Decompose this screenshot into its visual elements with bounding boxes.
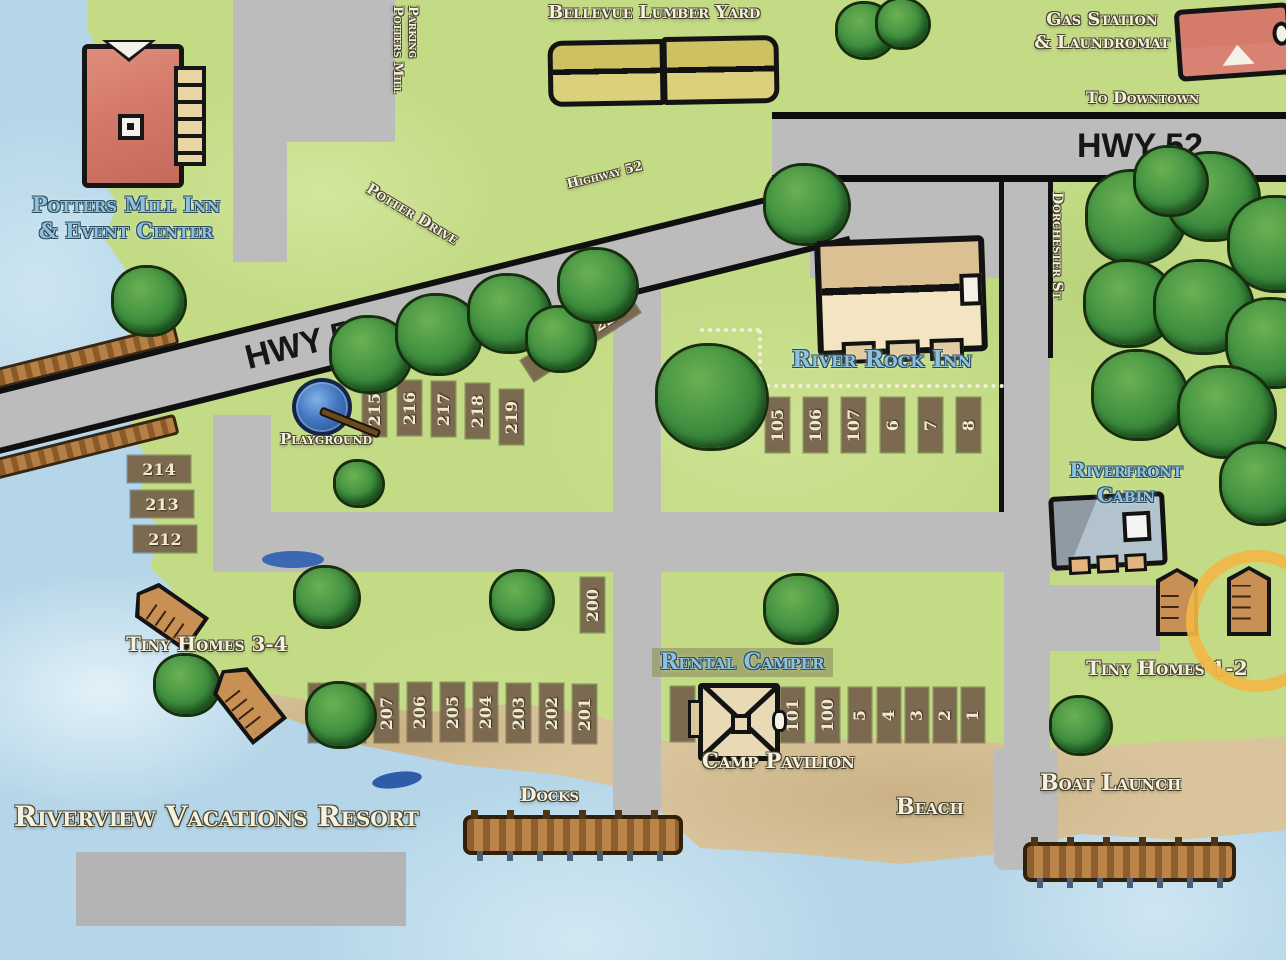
campsite-3: 3 <box>906 688 928 742</box>
site-number: 3 <box>907 709 926 720</box>
docks-label: Docks <box>520 784 579 806</box>
site-number: 212 <box>148 530 181 549</box>
label-line: Riverfront <box>1069 458 1182 482</box>
resort-title: Riverview Vacations Resort <box>14 800 419 833</box>
site-number: 207 <box>377 696 396 729</box>
campsite-219: 219 <box>500 390 523 444</box>
campsite-204: 204 <box>474 683 497 741</box>
cabin-window <box>1122 511 1152 542</box>
camp-main-road <box>613 250 661 818</box>
campsite-214: 214 <box>128 456 190 482</box>
site-number: 203 <box>509 696 528 729</box>
site-number: 4 <box>879 709 898 720</box>
campsite-212: 212 <box>134 526 196 552</box>
site-number: 105 <box>768 408 787 441</box>
site-number: 7 <box>921 419 940 430</box>
site-number: 5 <box>850 709 869 720</box>
campsite-213: 213 <box>131 491 193 517</box>
tiny-homes-34-label: Tiny Homes 3-4 <box>126 632 288 656</box>
campsite-4: 4 <box>878 688 900 742</box>
tree-icon <box>308 684 374 746</box>
tree-icon <box>296 568 358 626</box>
campsite-218: 218 <box>466 384 489 438</box>
tiny-homes-drive <box>1048 585 1160 651</box>
cabin-foot <box>1096 554 1119 573</box>
tree-icon <box>766 576 836 642</box>
label-line: Potters Mill Inn <box>32 192 221 217</box>
camp-pavilion-label: Camp Pavilion <box>702 748 855 773</box>
campsite-100: 100 <box>816 688 839 742</box>
tree-icon <box>156 656 218 714</box>
campsite-200: 200 <box>581 578 604 632</box>
inn-annex <box>174 66 206 166</box>
campsite-106: 106 <box>804 398 827 452</box>
parking-label-line2: Parking <box>405 6 420 58</box>
label-line: Gas Station <box>1046 9 1157 30</box>
lumber-yard-building-west <box>547 39 665 107</box>
tree-icon <box>658 346 766 448</box>
inn-window-pane <box>127 123 134 130</box>
watermark-box <box>76 852 406 926</box>
gas-station-window <box>1272 21 1286 46</box>
site-number: 214 <box>142 460 175 479</box>
campsite-203: 203 <box>507 684 530 742</box>
site-number: 218 <box>468 394 487 427</box>
parking-label-line1: Potters Mill <box>390 6 405 93</box>
river-rock-inn-building <box>814 235 988 357</box>
site-number: 216 <box>400 391 419 424</box>
tree-icon <box>1052 698 1110 753</box>
tree-icon <box>1094 352 1186 438</box>
campsite-107: 107 <box>842 398 865 452</box>
pavilion-table <box>772 710 787 732</box>
pavilion-grill <box>688 700 702 738</box>
dorchester-st-label: Dorchester St <box>1049 192 1065 299</box>
inn-roof-notch-fill <box>108 42 150 58</box>
campsite-1: 1 <box>962 688 984 742</box>
site-number: 100 <box>818 698 837 731</box>
gas-station-label: Gas Station & Laundromat <box>1022 8 1182 54</box>
pavilion-peak <box>731 714 751 734</box>
gas-station-building <box>1174 2 1286 82</box>
tree-icon <box>1222 444 1286 523</box>
campsite-105: 105 <box>766 398 789 452</box>
site-number: 213 <box>145 495 178 514</box>
beach-label: Beach <box>896 794 964 820</box>
dock-west <box>463 815 683 855</box>
potters-mill-inn-label: Potters Mill Inn & Event Center <box>6 192 246 244</box>
campsite-8: 8 <box>957 398 980 452</box>
site-number: 201 <box>575 697 594 730</box>
inn-chimney <box>959 273 982 306</box>
campsite-206: 206 <box>408 683 431 741</box>
tree-icon <box>336 462 382 505</box>
campsite-216: 216 <box>398 381 421 435</box>
campsite-6: 6 <box>881 398 904 452</box>
site-number: 107 <box>844 408 863 441</box>
cabin-foot <box>1068 556 1091 575</box>
site-number: 8 <box>959 419 978 430</box>
resort-map: HWY 52 HWY 52 To Downtown Highway 52 Pot… <box>0 0 1286 960</box>
campsite-2: 2 <box>934 688 956 742</box>
dock-east <box>1023 842 1236 882</box>
site-number: 204 <box>476 695 495 728</box>
campsite-5: 5 <box>849 688 871 742</box>
playground-label: Playground <box>280 430 372 448</box>
tree-icon <box>398 296 480 373</box>
site-number: 6 <box>883 419 902 430</box>
river-rock-inn-label: River Rock Inn <box>792 346 972 373</box>
cabin-foot <box>1124 553 1147 572</box>
campsite-217: 217 <box>432 382 455 436</box>
property-line <box>700 328 760 332</box>
boat-launch-label: Boat Launch <box>1040 770 1181 796</box>
campsite-207: 207 <box>375 684 398 742</box>
campsite-202: 202 <box>540 684 563 742</box>
gas-station-wedge <box>1221 44 1254 66</box>
site-number: 200 <box>583 588 602 621</box>
label-line: & Laundromat <box>1034 32 1169 53</box>
tree-icon <box>114 268 184 334</box>
campsite-205: 205 <box>441 683 464 741</box>
site-number: 219 <box>502 400 521 433</box>
potters-mill-inn-building <box>78 26 200 190</box>
potters-mill-parking-label: Potters Mill Parking <box>390 6 420 146</box>
campsite-201: 201 <box>573 685 596 743</box>
riverfront-cabin-label: Riverfront Cabin <box>1044 458 1208 508</box>
site-number: 215 <box>365 392 384 425</box>
to-downtown-label: To Downtown <box>1086 88 1199 107</box>
site-number: 205 <box>443 695 462 728</box>
rental-camper-label: Rental Camper <box>652 648 833 677</box>
site-number: 202 <box>542 696 561 729</box>
site-number: 206 <box>410 695 429 728</box>
water-puddle <box>262 551 324 568</box>
tree-icon <box>766 166 848 243</box>
site-number: 2 <box>935 709 954 720</box>
road-edge <box>999 173 1004 533</box>
site-number: 217 <box>434 392 453 425</box>
campsite-7: 7 <box>919 398 942 452</box>
site-number: 1 <box>963 709 982 720</box>
bellevue-lumber-yard-label: Bellevue Lumber Yard <box>548 2 760 23</box>
site-number: 106 <box>806 408 825 441</box>
label-line: & Event Center <box>39 218 213 243</box>
tree-icon <box>492 572 552 628</box>
tree-icon <box>1136 148 1206 214</box>
tree-icon <box>878 0 928 47</box>
label-line: Cabin <box>1097 483 1155 507</box>
property-line <box>758 384 1004 388</box>
lumber-yard-building-east <box>661 35 779 105</box>
tree-icon <box>560 250 636 321</box>
